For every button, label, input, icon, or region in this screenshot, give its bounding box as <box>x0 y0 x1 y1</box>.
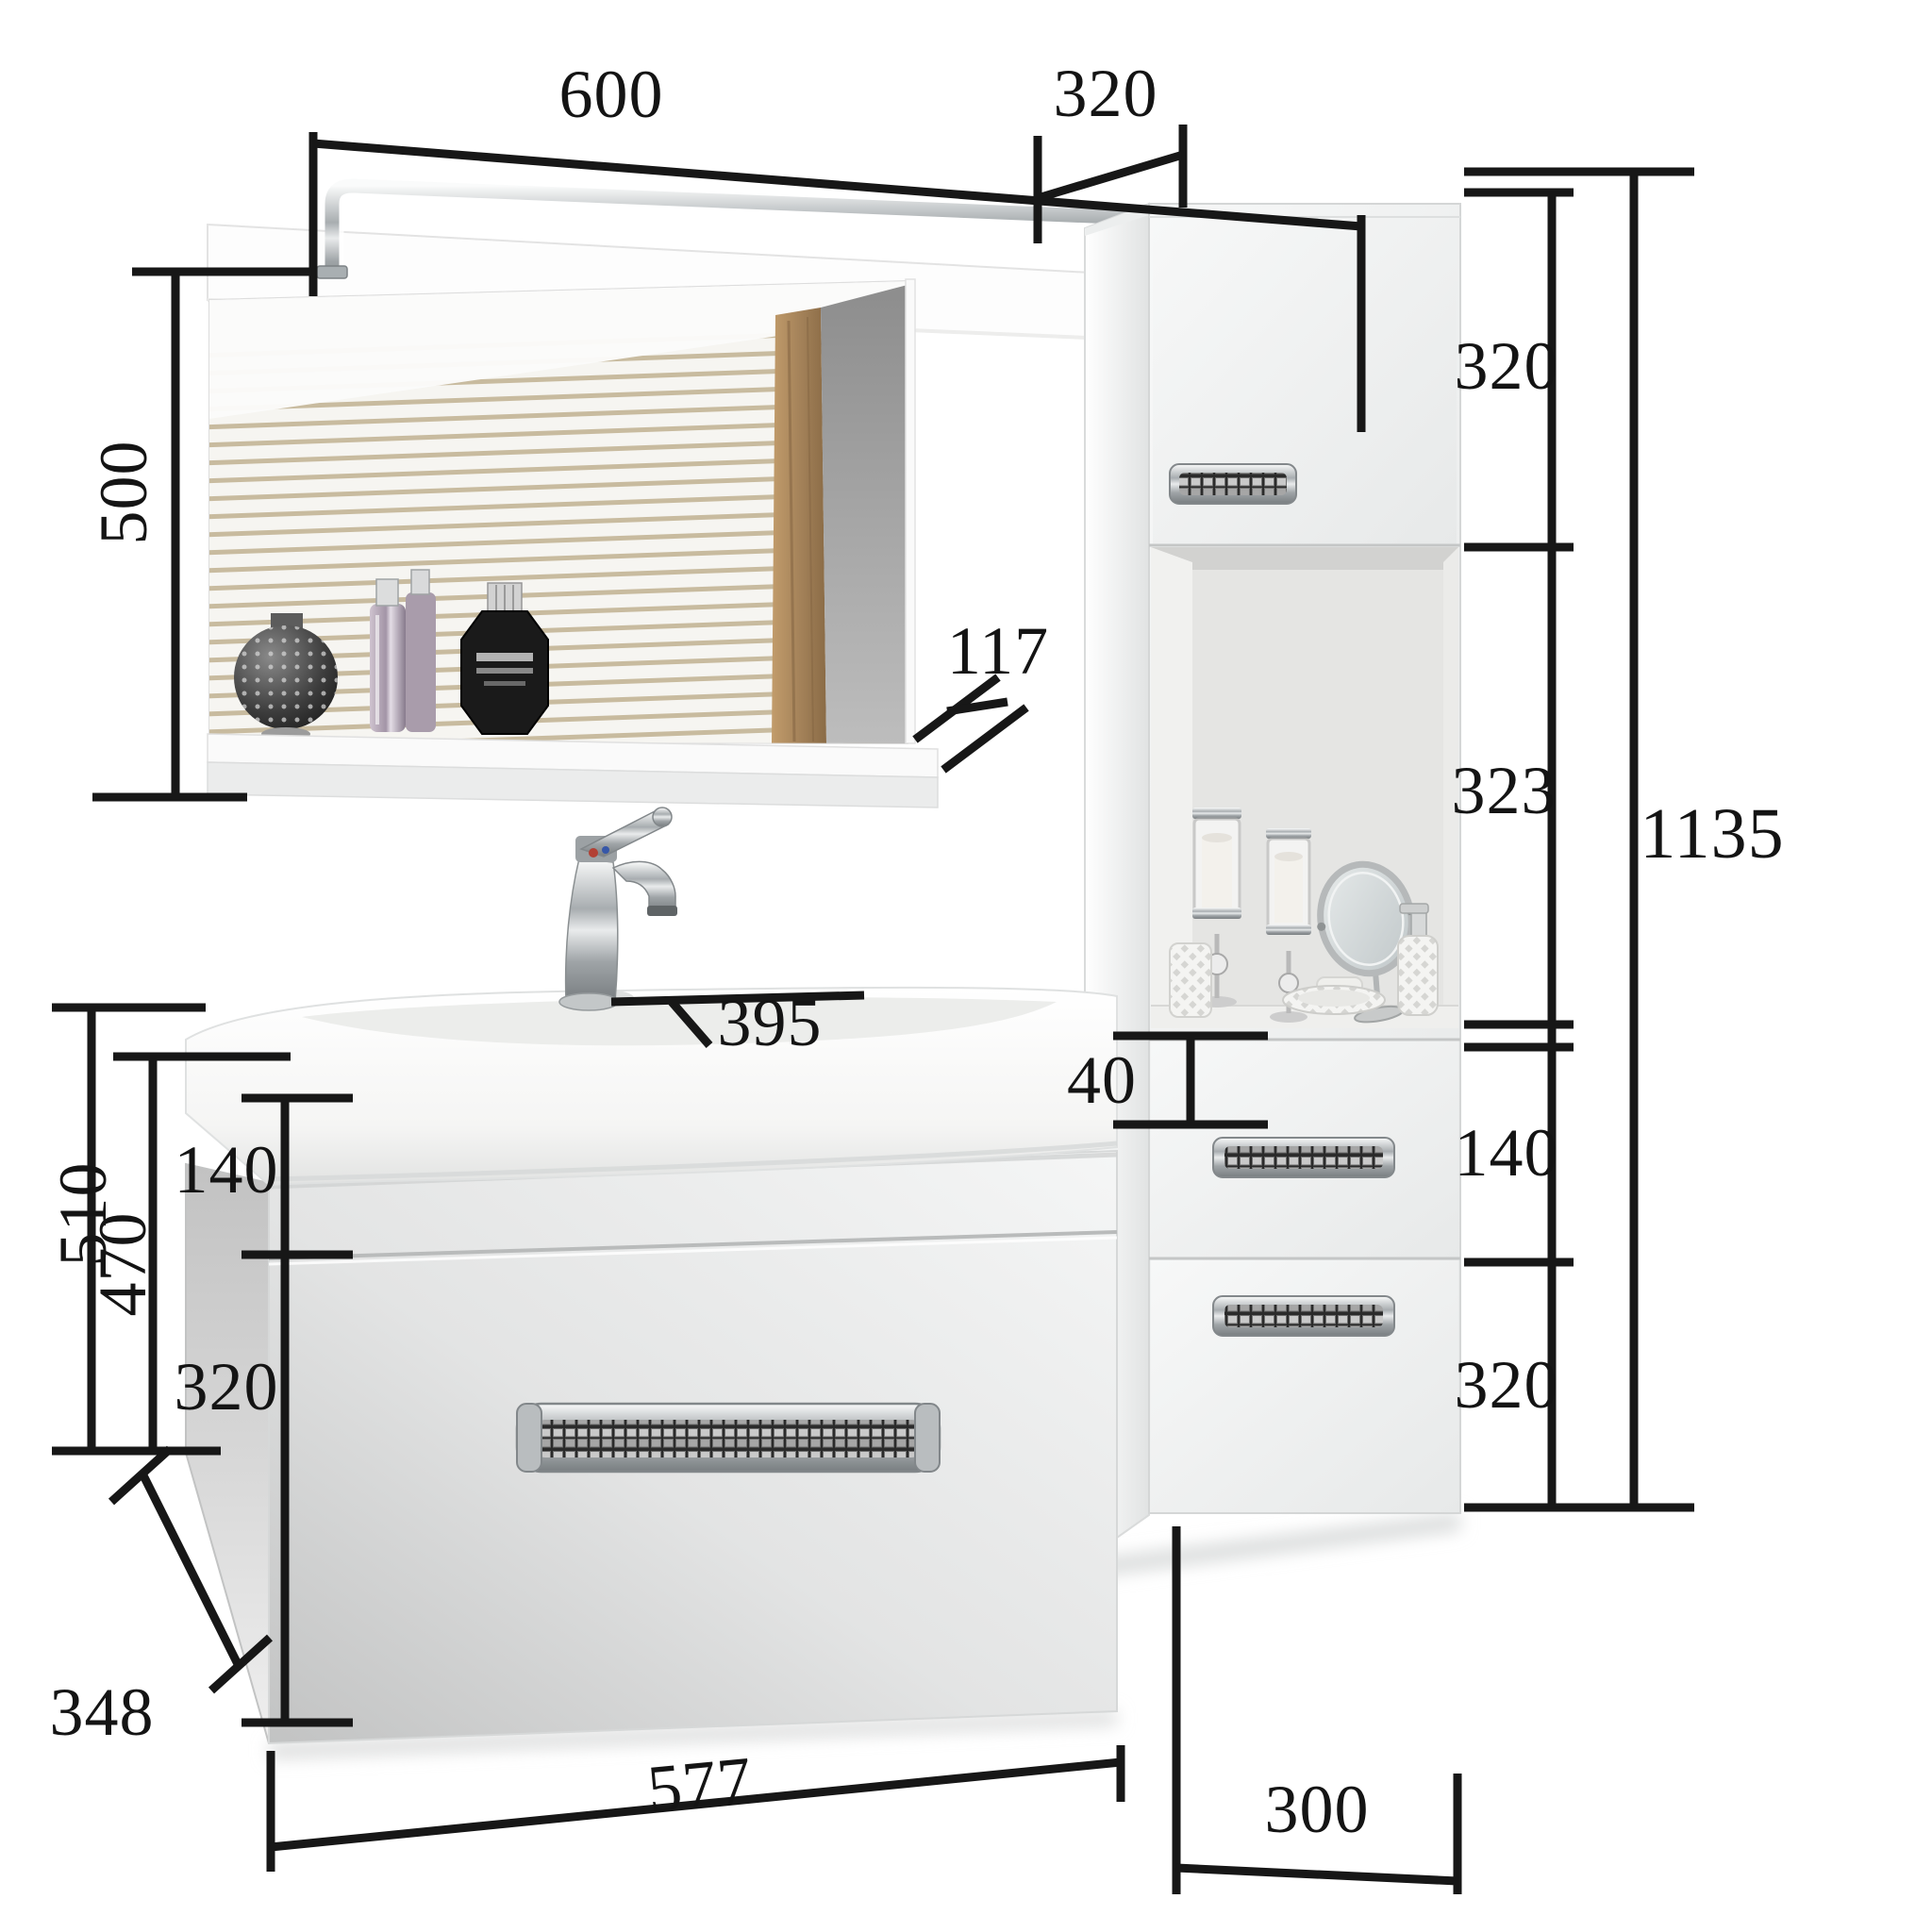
dim-mirror-width-label: 600 <box>559 60 664 128</box>
hot-dot <box>589 848 598 858</box>
faucet <box>559 808 677 1010</box>
vanity-drawer-handle <box>517 1404 940 1472</box>
dim-cabinet-depth-label: 320 <box>1054 59 1158 127</box>
cabinet-top-door <box>1149 215 1460 545</box>
dim-cabinet-total-height-label: 1135 <box>1640 798 1784 870</box>
aerator <box>647 906 677 916</box>
cabinet-bottom-door <box>1151 1260 1458 1511</box>
cabinet-drawer-handle <box>1213 1138 1394 1177</box>
cabinet-drawer <box>1149 1040 1460 1258</box>
dim-vanity-width-label: 577 <box>644 1746 755 1824</box>
cold-dot <box>602 846 609 854</box>
dim-basin-height-label: 40 <box>1067 1046 1137 1114</box>
dim-vanity-drawer-label: 320 <box>175 1353 279 1421</box>
sink <box>186 988 1117 1185</box>
dim-shelf-depth-label: 117 <box>947 617 1049 685</box>
cabinet-bottom-shadow <box>1085 1513 1460 1577</box>
dim-vanity-top-section-label: 140 <box>175 1136 279 1204</box>
dim-cabinet-top-door-label: 320 <box>1455 332 1559 400</box>
dim-vanity-body-height-label: 470 <box>89 1212 157 1317</box>
textured-tumbler <box>1170 943 1211 1017</box>
bottom-door-handle <box>1213 1296 1394 1336</box>
top-door-handle <box>1170 464 1296 504</box>
tall-cabinet <box>1085 204 1460 1577</box>
dimension-diagram: 600 320 500 117 395 40 140 510 470 320 3… <box>0 0 1932 1932</box>
dim-mirror-height-label: 500 <box>90 441 158 545</box>
cabinet-niche <box>1151 547 1458 1028</box>
diagram-artwork <box>0 0 1932 1932</box>
dim-cabinet-width-label: 300 <box>1265 1775 1370 1843</box>
mirror-edge <box>906 279 915 743</box>
dim-cabinet-niche-label: 323 <box>1452 757 1557 824</box>
dim-sink-depth-label: 395 <box>718 989 823 1057</box>
dim-vanity-depth-label: 348 <box>50 1678 155 1746</box>
mirror-shelf <box>208 734 938 808</box>
dim-cabinet-bottom-door-label: 320 <box>1455 1351 1559 1419</box>
reflected-wood-beam <box>772 308 826 743</box>
dim-cabinet-drawer-label: 140 <box>1455 1119 1559 1187</box>
vanity-unit <box>186 1151 1117 1758</box>
reflected-gray-wall <box>821 285 908 743</box>
